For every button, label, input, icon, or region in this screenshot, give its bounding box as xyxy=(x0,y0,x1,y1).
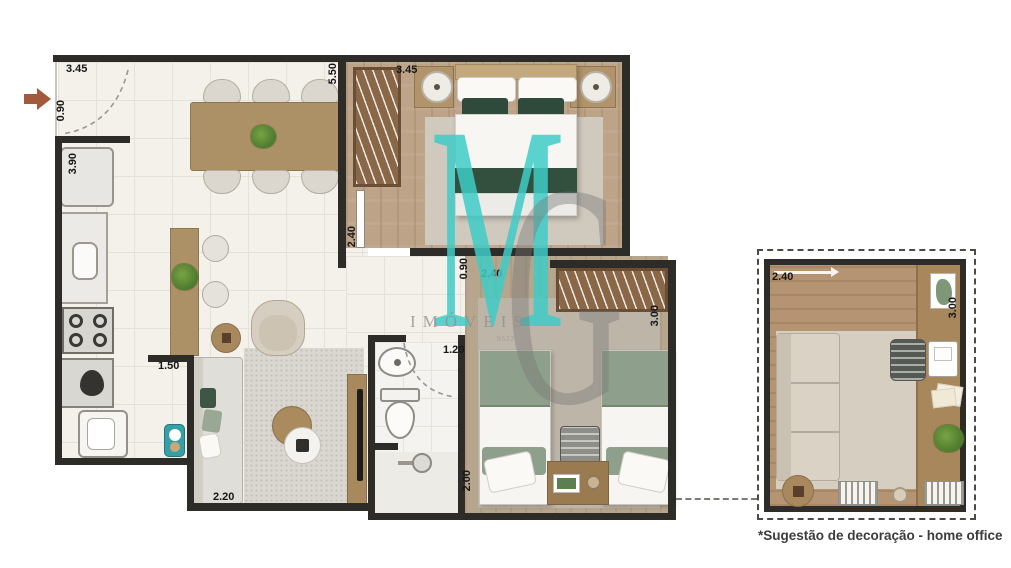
coffee-table-round xyxy=(284,427,321,464)
office-side-table xyxy=(782,475,814,507)
sofa-pillow-green xyxy=(200,388,216,408)
counter-plant-icon xyxy=(172,264,198,290)
armchair xyxy=(251,300,305,356)
lamp-icon xyxy=(421,71,453,103)
wall-bathroom-top xyxy=(368,335,406,342)
dimension-label: 1.50 xyxy=(158,361,179,372)
burner-icon xyxy=(69,333,83,347)
bed-blanket-sage xyxy=(602,351,672,407)
counter-stool xyxy=(202,235,229,262)
side-table xyxy=(211,323,241,353)
table-plant-icon xyxy=(251,125,276,148)
sofa-pillow-white xyxy=(198,432,222,459)
bedroom1-wardrobe xyxy=(353,67,401,187)
office-bowl-icon xyxy=(892,487,908,503)
bed-blanket-green xyxy=(455,168,577,195)
floor-plan-canvas: 3.45 0.90 3.90 5.50 3.45 2.40 0.90 2.40 … xyxy=(0,0,1011,568)
cart-dot-icon xyxy=(169,429,181,441)
entry-door-opening xyxy=(55,62,57,136)
laptop xyxy=(928,341,958,377)
side-table-item xyxy=(222,333,231,343)
dimension-label: 2.20 xyxy=(213,492,234,503)
dimension-label: 2.40 xyxy=(347,226,358,247)
hall-floor xyxy=(346,256,465,346)
laundry-tub xyxy=(78,410,128,458)
bathroom-sink xyxy=(378,347,416,377)
wall-entry-divider xyxy=(55,136,130,143)
wall-service-right xyxy=(187,355,194,510)
sofa-pillow-sage xyxy=(202,409,223,433)
burner-icon xyxy=(69,314,83,328)
home-office-room xyxy=(764,259,966,512)
coffee-table-item xyxy=(296,439,309,452)
wall-living-bedroom1 xyxy=(338,55,346,268)
cart-dot-icon xyxy=(170,442,180,452)
wall-left xyxy=(55,136,62,465)
single-bed xyxy=(479,350,551,505)
wall-living-bottom xyxy=(187,503,370,511)
burner-icon xyxy=(93,333,107,347)
dimension-label: 0.90 xyxy=(459,258,470,279)
armchair-seat xyxy=(259,315,297,351)
papers xyxy=(931,388,957,409)
desk-art xyxy=(553,474,580,493)
office-chair xyxy=(890,339,926,381)
desk-art-green xyxy=(557,478,576,489)
desk-chair xyxy=(560,426,600,464)
book-stack xyxy=(924,481,964,505)
lamp-icon xyxy=(580,71,612,103)
office-caption: *Sugestão de decoração - home office xyxy=(758,528,1003,543)
faucet-icon xyxy=(394,359,401,366)
dimension-label: 2.00 xyxy=(462,470,473,491)
bedroom2-desk xyxy=(547,461,609,505)
wall-shower-stub xyxy=(368,443,398,450)
dimension-label: 5.50 xyxy=(328,63,339,84)
counter-stool xyxy=(202,281,229,308)
dimension-label: 2.40 xyxy=(772,272,793,283)
wall-bathroom-left xyxy=(368,335,375,513)
bed-foot xyxy=(455,193,577,216)
desk-cup-icon xyxy=(586,475,601,490)
laundry-basin xyxy=(87,418,115,450)
office-sofa xyxy=(776,333,840,481)
kitchen-sink-basin xyxy=(72,242,98,280)
wall-bottom-right xyxy=(368,513,676,520)
tv-icon xyxy=(357,389,363,481)
connector-line xyxy=(676,498,757,500)
wall-bedroom2-right xyxy=(668,260,676,520)
wall-service-bottom xyxy=(55,458,194,465)
dimension-label: 3.00 xyxy=(650,305,661,326)
book-stack xyxy=(838,481,878,505)
wall-bedroom2-top xyxy=(550,260,676,268)
cleaning-cart xyxy=(164,424,185,457)
outside-area xyxy=(58,465,187,510)
dimension-label: 3.00 xyxy=(948,297,959,318)
stove xyxy=(62,307,114,354)
duvet xyxy=(455,114,577,170)
office-plant-icon xyxy=(934,425,964,452)
dimension-label: 3.45 xyxy=(66,64,87,75)
dimension-label: 1.20 xyxy=(443,345,464,356)
kitchen-sink-counter xyxy=(60,212,108,304)
burner-icon xyxy=(93,314,107,328)
shower-head-icon xyxy=(412,453,432,473)
dimension-label: 3.90 xyxy=(68,153,79,174)
washing-machine xyxy=(60,358,114,408)
dimension-label: 0.90 xyxy=(56,100,67,121)
entry-arrow-icon xyxy=(24,88,54,110)
single-bed xyxy=(601,350,673,505)
wall-bedroom1-right xyxy=(622,55,630,256)
kitchen-counter xyxy=(170,228,199,356)
washer-door-icon xyxy=(80,370,104,396)
bed-blanket-sage xyxy=(480,351,550,407)
toilet-tank xyxy=(380,388,420,402)
dimension-label: 3.45 xyxy=(396,65,417,76)
double-bed xyxy=(455,64,577,216)
sofa xyxy=(189,357,243,504)
dimension-label: 2.40 xyxy=(481,269,502,280)
wall-bedroom1-bottom xyxy=(410,248,630,256)
